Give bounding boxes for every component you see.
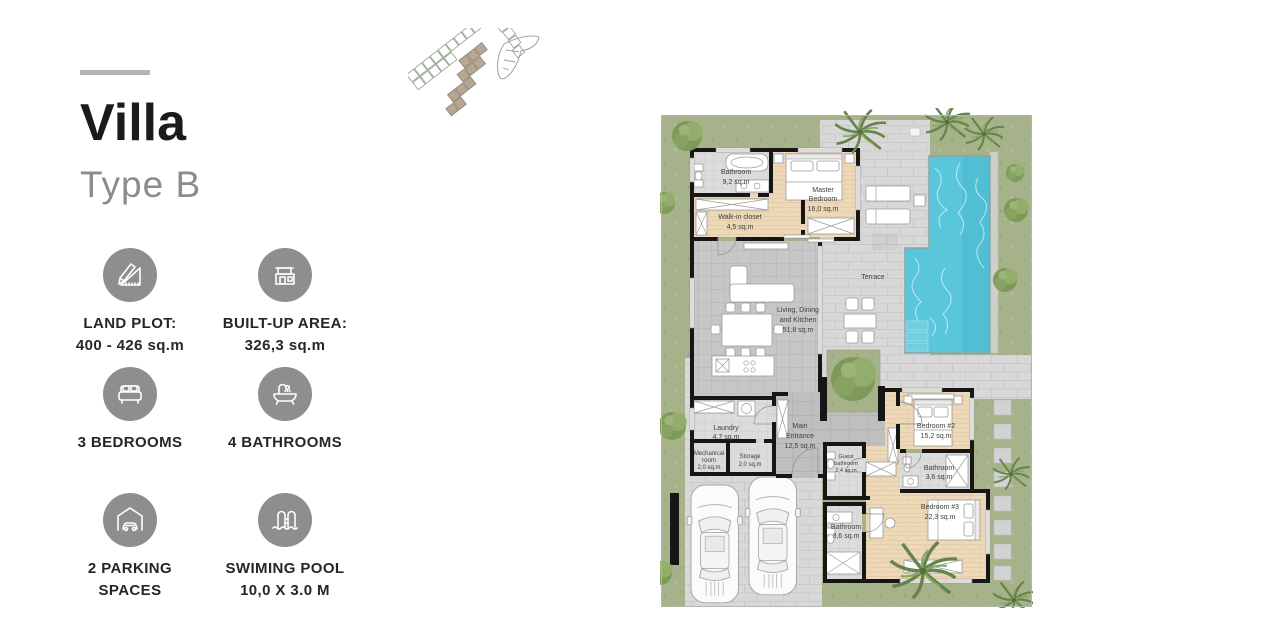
room-label: 2,4 sq.m xyxy=(835,468,857,474)
room-label: 22,3 sq.m xyxy=(925,514,956,521)
room-label: bathroom xyxy=(834,461,858,467)
kitchen-counter xyxy=(712,356,774,376)
desk xyxy=(870,508,883,538)
feature-bathrooms: 4 BATHROOMS xyxy=(205,367,365,455)
room-label: 51,8 sq.m xyxy=(783,327,814,334)
feature-label: SWIMING POOL 10,0 X 3.0 M xyxy=(226,558,345,603)
room-label: Terrace xyxy=(861,274,884,281)
feature-line: SWIMING POOL xyxy=(226,558,345,581)
swimming-pool-icon xyxy=(258,493,312,547)
toilet xyxy=(694,164,703,171)
room-label: Bathroom xyxy=(924,465,955,472)
room-label: and Kitchen xyxy=(780,317,817,324)
nightstand xyxy=(845,154,854,163)
feature-parking: 2 PARKING SPACES xyxy=(55,493,205,603)
room-label: Laundry xyxy=(713,425,739,432)
room-label: 3,6 sq.m xyxy=(926,474,953,481)
room-label: Living, Dining xyxy=(777,307,819,314)
pool-steps xyxy=(906,321,928,351)
parking-icon xyxy=(103,493,157,547)
room-label: Bathroom xyxy=(721,169,752,176)
room-label: 2,0 sq.m xyxy=(738,462,761,468)
built-up-area-icon xyxy=(258,248,312,302)
feature-label: BUILT-UP AREA: 326,3 sq.m xyxy=(223,313,348,358)
feature-line: 4 BATHROOMS xyxy=(228,432,342,455)
bathrooms-icon xyxy=(258,367,312,421)
feature-label: 2 PARKING SPACES xyxy=(88,558,172,603)
feature-swimming-pool: SWIMING POOL 10,0 X 3.0 M xyxy=(205,493,365,603)
feature-line: 10,0 X 3.0 M xyxy=(226,580,345,603)
room-label: Entrance xyxy=(786,433,814,440)
room-label: 3,6 sq.m xyxy=(833,533,860,540)
feature-label: 3 BEDROOMS xyxy=(78,432,183,455)
land-plot-icon xyxy=(103,248,157,302)
pool-side-border xyxy=(990,152,998,353)
room-label: Storage xyxy=(739,454,761,460)
room-label: Bathroom xyxy=(831,524,862,531)
accent-line xyxy=(80,70,150,75)
site-map-plots xyxy=(408,28,531,122)
page-title: Villa xyxy=(80,97,410,149)
room-label: 12,5 sq.m xyxy=(785,443,816,450)
feature-land-plot: LAND PLOT: 400 - 426 sq.m xyxy=(55,248,205,358)
room-label: Walk-in closet xyxy=(718,214,761,221)
site-map xyxy=(408,28,548,128)
feature-line: 3 BEDROOMS xyxy=(78,432,183,455)
tv-bench xyxy=(744,243,788,249)
page-subtitle: Type B xyxy=(80,165,410,206)
room-label: Master xyxy=(812,187,834,194)
room-label: Main xyxy=(792,423,807,430)
feature-line: SPACES xyxy=(88,580,172,603)
room-label: 4,7 sq.m xyxy=(713,434,740,441)
room-label: Bedroom xyxy=(809,196,838,203)
sink xyxy=(694,180,703,187)
room-label: Guest xyxy=(839,454,854,460)
feature-label: 4 BATHROOMS xyxy=(228,432,342,455)
feature-line: BUILT-UP AREA: xyxy=(223,313,348,336)
room-label: room xyxy=(702,458,716,464)
entrance-floor xyxy=(776,446,823,478)
boundary-wall xyxy=(670,493,679,565)
courtyard-garden xyxy=(827,350,880,412)
room-label: 9,2 sq.m xyxy=(723,179,750,186)
room-label: 15,2 sq.m xyxy=(921,433,952,440)
feature-bedrooms: 3 BEDROOMS xyxy=(55,367,205,455)
car xyxy=(687,485,742,603)
left-panel: Villa Type B LAND PLOT: 400 - 426 sq.m B… xyxy=(80,70,410,603)
room-label: Bedroom #2 xyxy=(917,423,955,430)
feature-built-up-area: BUILT-UP AREA: 326,3 sq.m xyxy=(205,248,365,358)
bedrooms-icon xyxy=(103,367,157,421)
room-label: 2,0 sq.m xyxy=(697,465,720,471)
feature-line: 326,3 sq.m xyxy=(223,335,348,358)
terrace-light-fixture xyxy=(910,128,920,136)
feature-line: 2 PARKING xyxy=(88,558,172,581)
room-label: Bedroom #3 xyxy=(921,504,959,511)
bedroom2-shelf xyxy=(908,394,954,399)
feature-line: LAND PLOT: xyxy=(76,313,184,336)
room-label: Mechanical xyxy=(694,451,724,457)
room-label: 16,0 sq.m xyxy=(808,206,839,213)
glass-wall xyxy=(818,246,822,354)
feature-line: 400 - 426 sq.m xyxy=(76,335,184,358)
feature-list: LAND PLOT: 400 - 426 sq.m BUILT-UP AREA:… xyxy=(55,248,410,603)
floor-plan: Bathroom 9,2 sq.m Master Bedroom 16,0 sq… xyxy=(660,108,1033,608)
room-label: 4,5 sq.m xyxy=(727,224,754,231)
nightstand xyxy=(774,154,783,163)
feature-label: LAND PLOT: 400 - 426 sq.m xyxy=(76,313,184,358)
car xyxy=(745,477,800,595)
